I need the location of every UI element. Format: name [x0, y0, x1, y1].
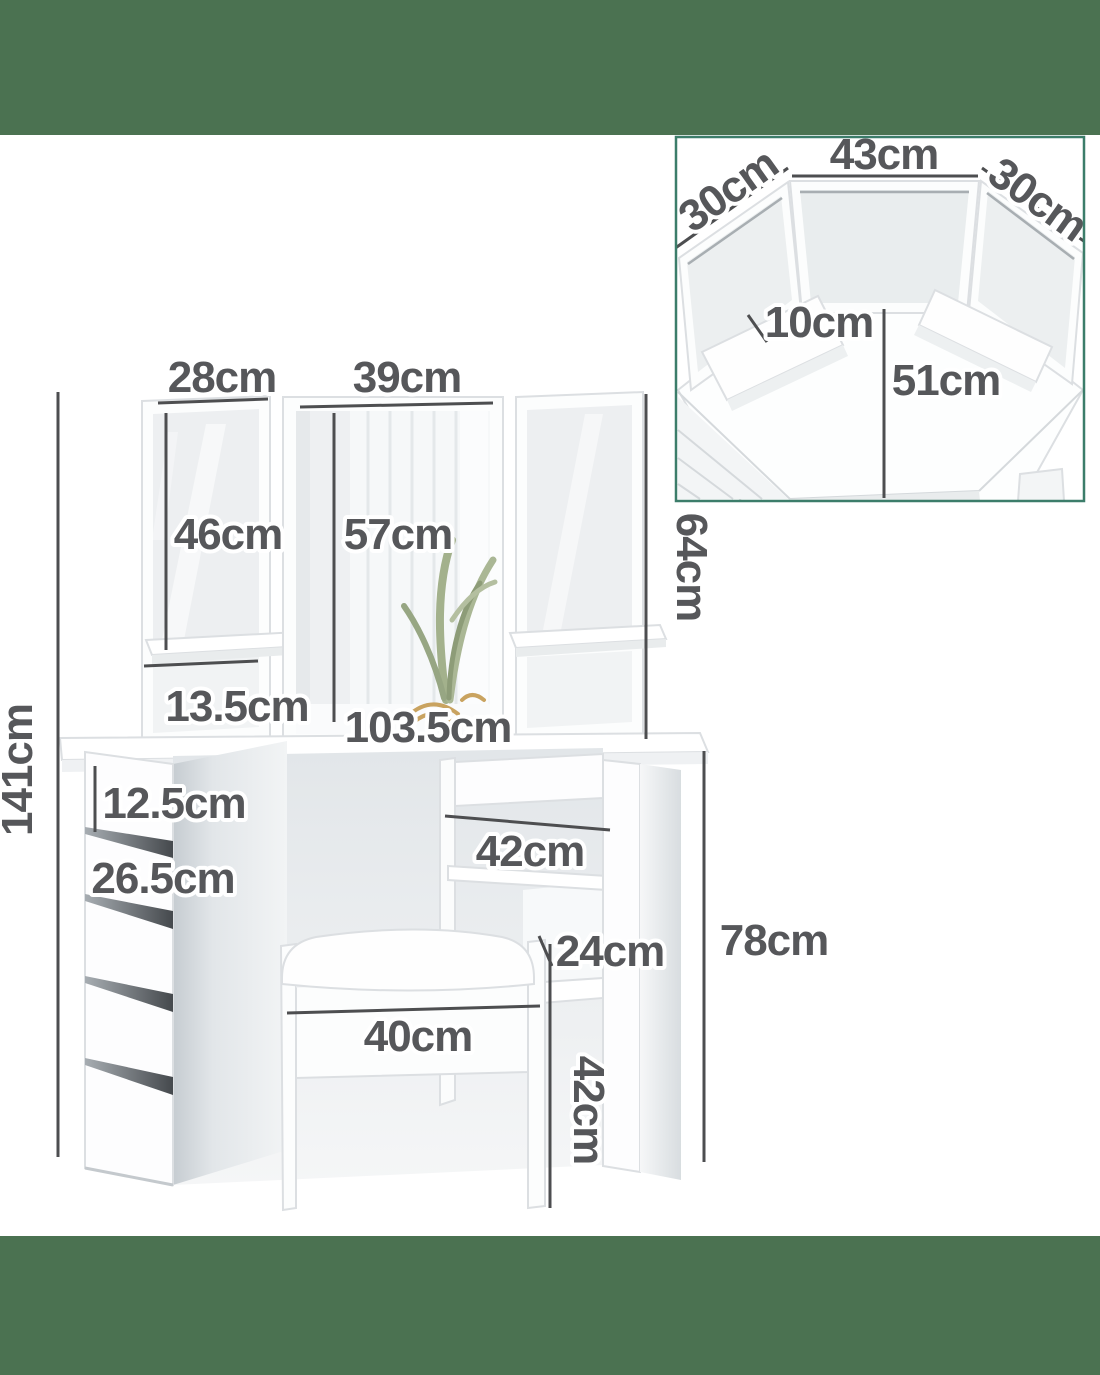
- label-mirror-side-height: 46cm: [174, 510, 283, 559]
- label-mirror-center-width: 39cm: [353, 353, 462, 402]
- stool-cushion: [282, 930, 534, 991]
- topview-desk-leg: [1018, 469, 1064, 501]
- dimension-diagram: 28cm 39cm 46cm 57cm 64cm 13.5cm 103.5cm …: [0, 0, 1100, 1375]
- mirror-right-panel: [510, 392, 666, 743]
- label-shelf-depth: 10cm: [765, 298, 874, 347]
- mirror-center-panel: [283, 397, 503, 742]
- label-lower-drawer-height: 26.5cm: [91, 854, 234, 903]
- label-top-drawer-height: 12.5cm: [102, 779, 245, 828]
- bottom-green-band: [0, 1236, 1100, 1375]
- label-mirror-total-height: 64cm: [667, 513, 716, 622]
- pedestal-top-drawer: [455, 754, 603, 806]
- inset-top-view: 43cm 30cm 30cm 10cm 51cm: [670, 130, 1096, 501]
- label-stool-width: 40cm: [364, 1012, 473, 1061]
- label-right-drawer-width: 42cm: [476, 827, 585, 876]
- topview-mirror-center: [790, 181, 979, 313]
- label-overall-height: 141cm: [0, 704, 42, 836]
- label-tabletop-height: 78cm: [720, 916, 829, 965]
- label-mirror-center-height: 57cm: [344, 510, 453, 559]
- label-stool-height: 42cm: [564, 1056, 613, 1165]
- label-knee-clearance: 24cm: [556, 927, 665, 976]
- top-green-band: [0, 0, 1100, 135]
- label-tabletop-width: 103.5cm: [345, 703, 512, 752]
- label-mirror-left-width: 28cm: [168, 353, 277, 402]
- label-side-shelf-depth: 13.5cm: [165, 682, 308, 731]
- label-desk-depth: 51cm: [892, 356, 1001, 405]
